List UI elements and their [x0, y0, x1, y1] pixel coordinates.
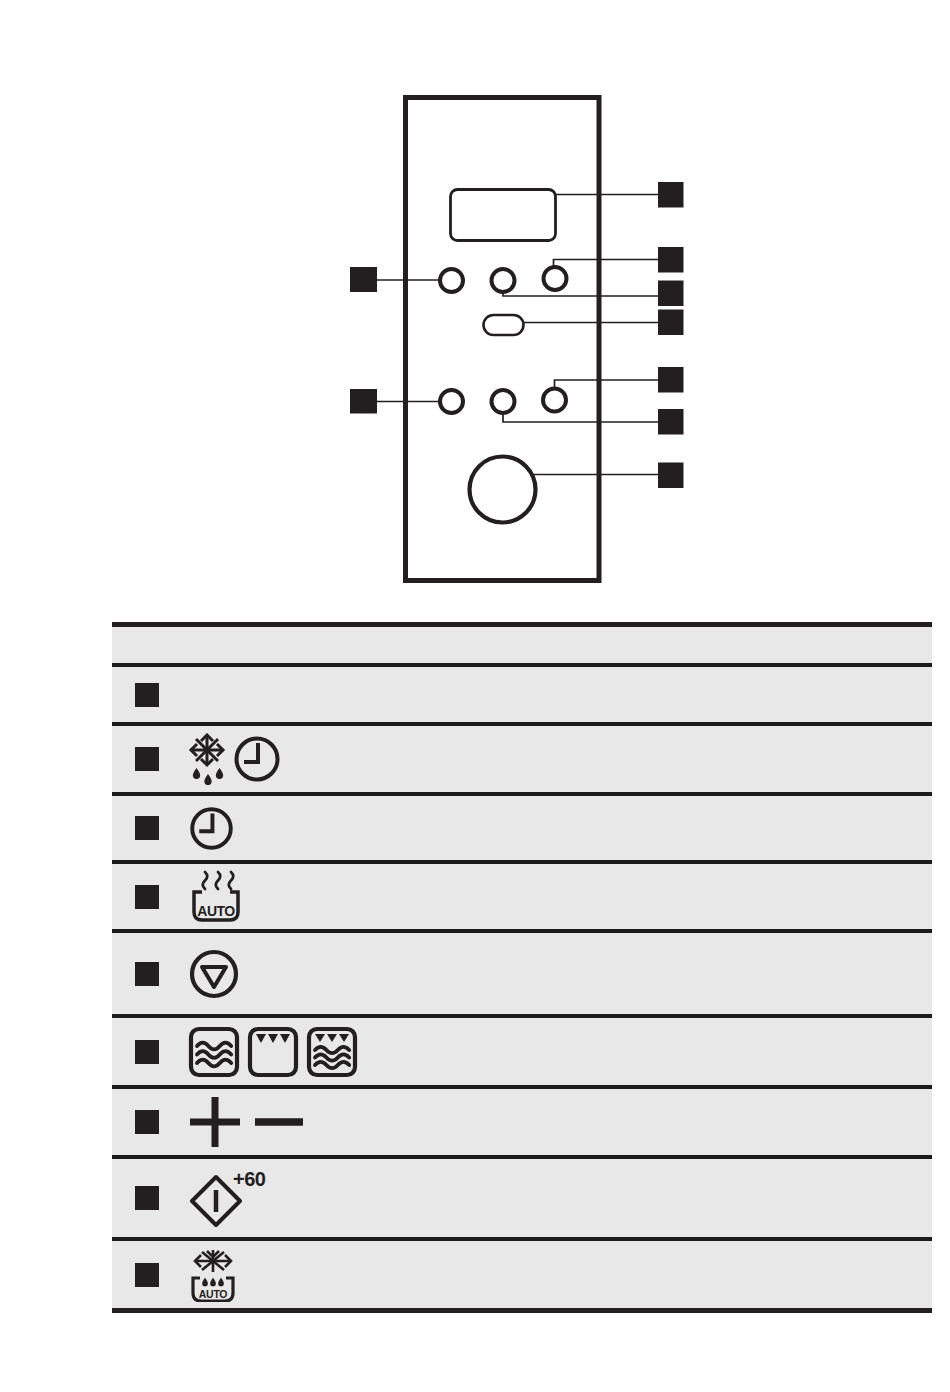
callout-marker-right-4: [658, 310, 684, 336]
callout-marker-left-2: [350, 389, 377, 414]
legend-row-clock: [112, 792, 932, 860]
snowflake-drip-icon: [188, 733, 226, 785]
auto-label: AUTO: [197, 903, 235, 919]
microwave-icon: [188, 1026, 240, 1078]
button-circle-top-2: [492, 269, 515, 292]
callout-marker-right-5: [658, 367, 684, 393]
callout-marker-right-6: [658, 409, 684, 435]
control-panel-diagram: [335, 88, 695, 600]
legend-row-defrost-time: [112, 722, 932, 792]
plus60-label: +60: [233, 1169, 266, 1190]
legend-row-stop: [112, 929, 932, 1014]
stop-pill-button: [484, 315, 524, 335]
legend-row-steam-auto: AUTO: [112, 860, 932, 929]
button-circle-top-3: [544, 267, 567, 290]
callout-marker: [135, 747, 159, 771]
callout-marker: [135, 816, 159, 840]
legend-row-plus-minus: [112, 1085, 932, 1155]
rotary-dial: [470, 457, 536, 523]
steam-auto-icon: AUTO: [188, 870, 244, 924]
grill-icon: [247, 1026, 299, 1078]
button-circle-bottom-1: [440, 390, 463, 413]
callout-marker: [135, 962, 159, 986]
legend-row-auto-defrost: AUTO: [112, 1237, 932, 1308]
grill-microwave-icon: [306, 1026, 358, 1078]
callout-marker: [135, 885, 159, 909]
clock-icon: [188, 805, 235, 852]
callout-marker-left-1: [350, 267, 377, 292]
manual-page: AUTO: [0, 0, 950, 1392]
button-circle-bottom-3: [543, 389, 566, 412]
callout-marker: [135, 683, 159, 707]
stop-icon: [188, 948, 240, 1000]
legend-row-oven-functions: [112, 1014, 932, 1085]
clock-icon: [232, 734, 282, 784]
callout-marker: [135, 1110, 159, 1134]
minus-icon: [254, 1117, 304, 1127]
auto-defrost-icon: AUTO: [188, 1248, 238, 1302]
button-circle-top-1: [440, 269, 463, 292]
callout-marker-right-3: [658, 281, 684, 307]
legend-table: AUTO: [112, 622, 932, 1313]
plus-icon: [188, 1095, 242, 1149]
button-circle-bottom-2: [492, 390, 515, 413]
callout-marker: [135, 1263, 159, 1287]
callout-marker-right-1: [658, 182, 684, 208]
legend-header-row: [112, 627, 932, 663]
callout-marker: [135, 1040, 159, 1064]
callout-marker-right-7: [658, 463, 684, 489]
start-plus-60-icon: +60: [188, 1169, 270, 1227]
auto-label: AUTO: [199, 1288, 227, 1300]
callout-marker-right-2: [658, 247, 684, 273]
callout-marker: [135, 1186, 159, 1210]
legend-row-display: [112, 663, 932, 722]
display-window: [451, 190, 556, 241]
legend-row-start-plus60: +60: [112, 1155, 932, 1237]
